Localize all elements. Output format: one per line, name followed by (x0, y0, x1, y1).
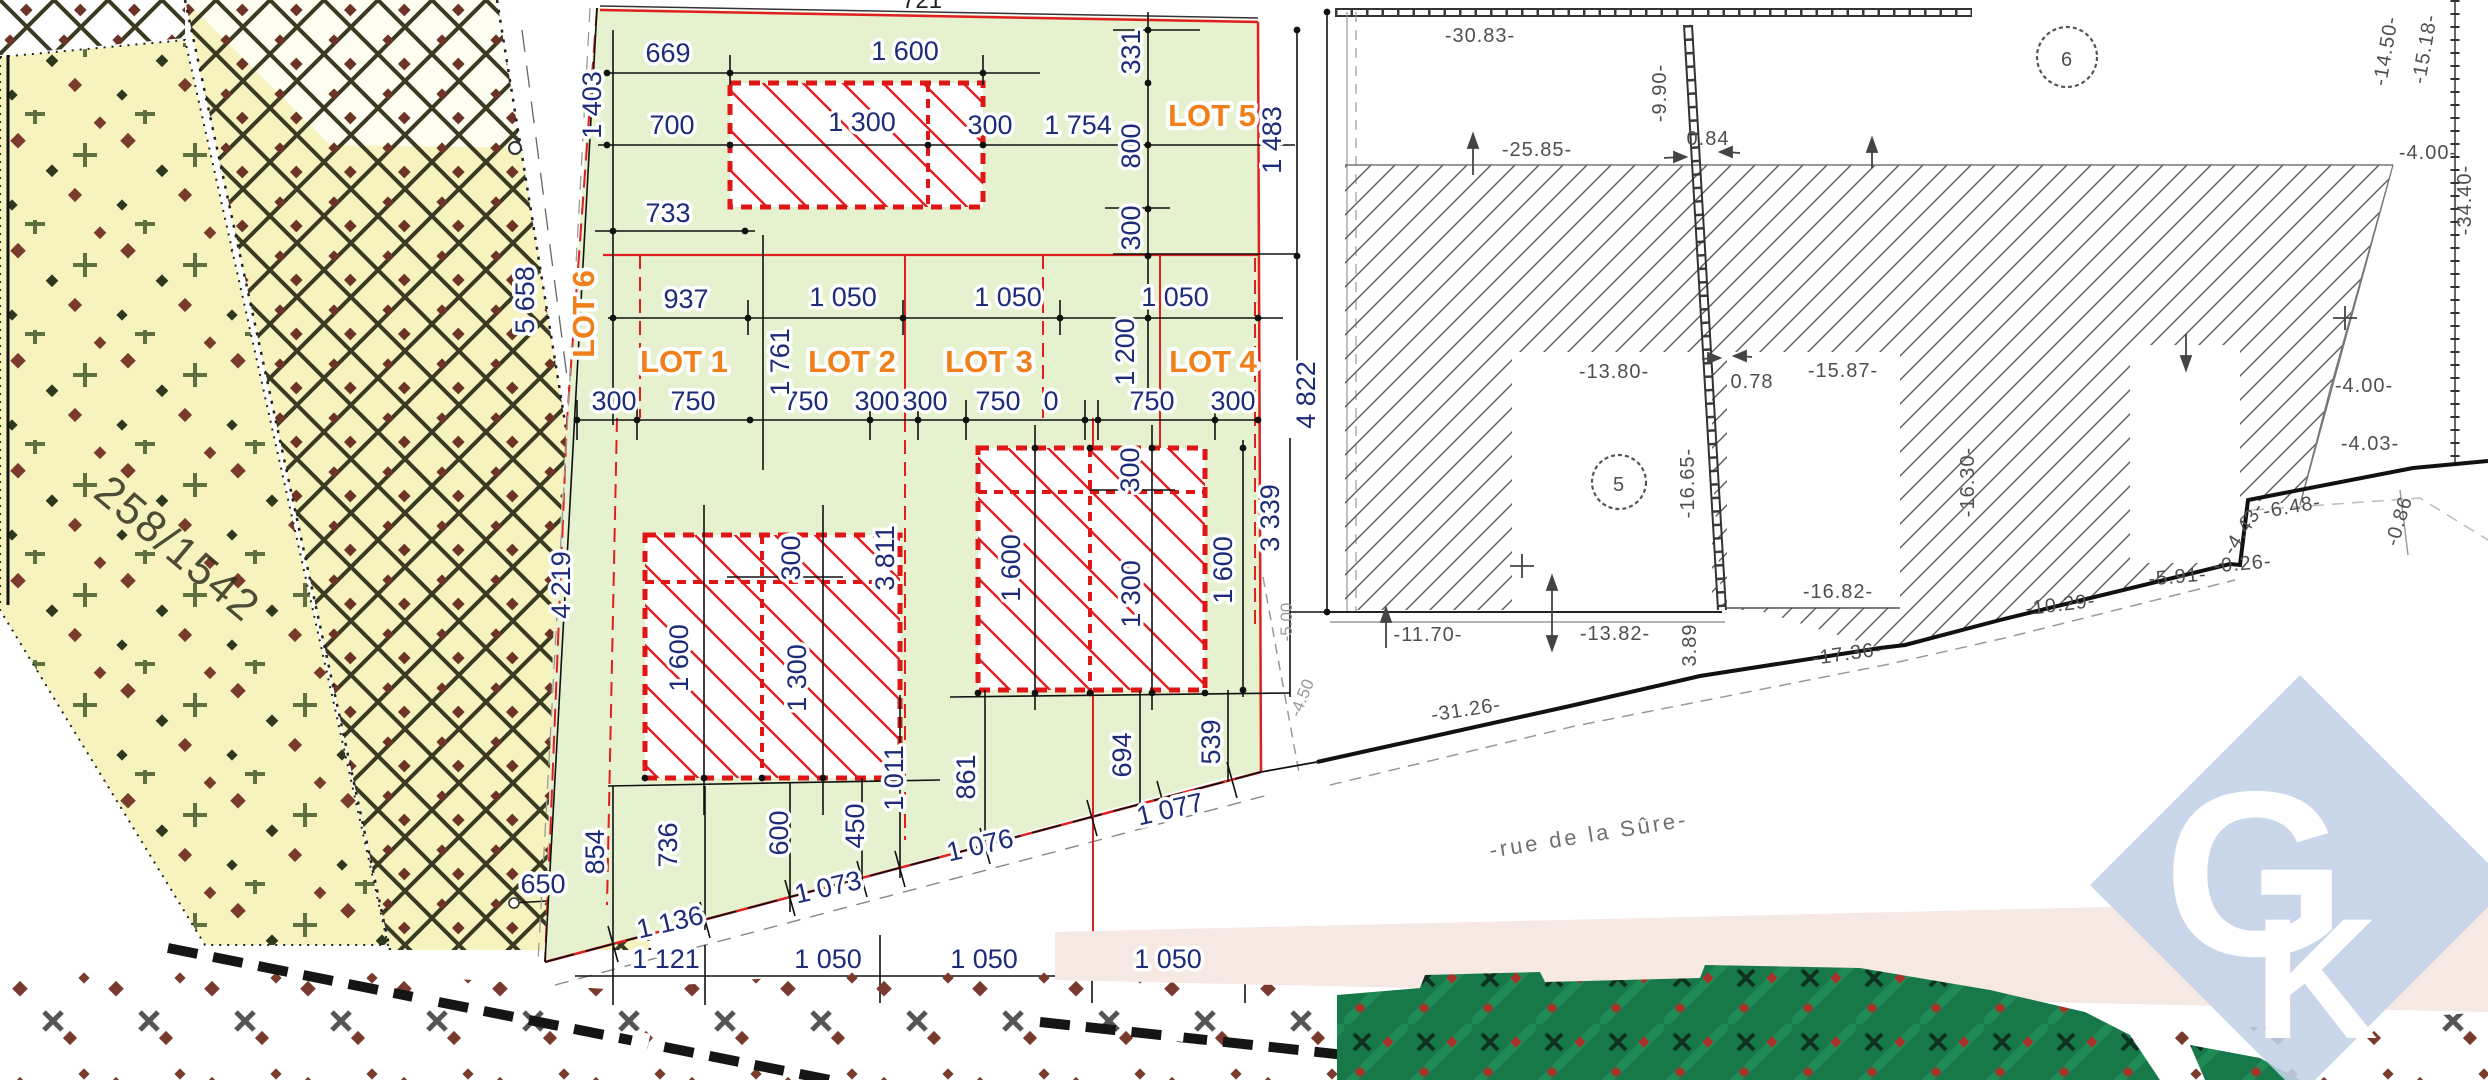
dimension-label: 669 (645, 38, 690, 68)
site-plan-canvas: G K 6691 6007001 3003007331 7549371 0501… (0, 0, 2488, 1080)
survey-label: -15.87- (1808, 360, 1878, 382)
dimension-label: 736 (653, 822, 683, 867)
survey-label: 0.84 (1687, 128, 1730, 150)
dimension-label: 1 600 (664, 624, 694, 692)
survey-label: -34.40- (2454, 165, 2476, 235)
lot-label: LOT 2 (808, 344, 896, 379)
dimension-label: 1 121 (632, 944, 700, 974)
dimension-label: 1 403 (577, 71, 607, 139)
survey-label: -13.82- (1580, 623, 1650, 645)
dimension-label: 600 (764, 810, 794, 855)
elevation-label: -5.00 (1277, 603, 1296, 642)
dimension-label: 300 (1210, 386, 1255, 416)
survey-label: -11.70- (1394, 624, 1463, 646)
survey-label: -4.00- (2399, 142, 2457, 164)
dimension-label: 1 050 (794, 944, 862, 974)
dimension-label: 300 (591, 386, 636, 416)
dimension-label: 1 754 (1044, 110, 1112, 140)
dimension-label: 1 050 (950, 944, 1018, 974)
lot-label: LOT 1 (640, 344, 728, 379)
survey-label: -4.03- (2341, 433, 2399, 455)
survey-label: -4.00- (2335, 375, 2393, 397)
dimension-label: 1 300 (782, 644, 812, 712)
clipped-edge-label: 721 (902, 0, 942, 14)
dimension-label: 3 339 (1255, 484, 1285, 552)
existing-building-far-east (2130, 345, 2240, 563)
survey-label: 5 (1613, 474, 1625, 496)
dimension-label: 331 (1116, 29, 1146, 74)
lot-label: LOT 4 (1169, 344, 1258, 379)
dimension-label: 694 (1107, 732, 1137, 777)
lot-label: LOT 6 (566, 270, 601, 358)
survey-label: 0.78 (1731, 371, 1774, 393)
dimension-label: 1 600 (871, 36, 939, 66)
survey-label: 6 (2061, 49, 2073, 71)
dimension-label: 1 200 (1110, 318, 1140, 386)
dimension-label: 3 811 (870, 525, 900, 591)
dimension-label: 1 011 (879, 745, 909, 811)
survey-label: -30.83- (1445, 25, 1515, 47)
dimension-label: 1 600 (996, 534, 1026, 602)
survey-label: -13.80- (1579, 361, 1649, 383)
dimension-label: 1 050 (809, 282, 877, 312)
dimension-label: 300 (854, 386, 899, 416)
survey-label: -25.85- (1502, 139, 1572, 161)
dimension-label: 800 (1116, 123, 1146, 168)
dimension-label: 1 600 (1208, 536, 1238, 604)
gk-logo-letter-k: K (2254, 883, 2378, 1075)
dimension-label: 854 (580, 829, 610, 874)
survey-label: -16.65- (1677, 448, 1699, 518)
dimension-label: 300 (776, 535, 806, 580)
dimension-label: 937 (663, 284, 708, 314)
dimension-label: 1 483 (1257, 106, 1287, 174)
dimension-label: 450 (840, 803, 870, 848)
dimension-label: 750 (975, 386, 1020, 416)
dimension-label: 733 (645, 198, 690, 228)
dimension-label: 1 300 (828, 107, 896, 137)
dimension-label: 700 (649, 110, 694, 140)
dimension-label: 4 822 (1291, 361, 1321, 429)
lot-label: LOT 3 (945, 344, 1033, 379)
dimension-label: 1 761 (765, 328, 795, 396)
dimension-label: 750 (1129, 386, 1174, 416)
dimension-label: 1 050 (1141, 282, 1209, 312)
dimension-label: 0 (1043, 386, 1058, 416)
lot-label: LOT 5 (1168, 98, 1256, 133)
dimension-label: 300 (967, 110, 1012, 140)
dimension-label: 5 658 (510, 266, 540, 334)
dimension-label: 300 (1115, 447, 1145, 492)
dimension-label: 750 (670, 386, 715, 416)
survey-label: -16.30- (1957, 447, 1979, 517)
dimension-label: 861 (951, 754, 981, 799)
dimension-label: 1 300 (1116, 560, 1146, 628)
dimension-label: 650 (520, 869, 565, 899)
dimension-label: 300 (1116, 205, 1146, 250)
dimension-label: 4 219 (546, 551, 576, 619)
survey-label: -16.82- (1803, 581, 1873, 603)
dimension-label: 300 (902, 386, 947, 416)
dimension-label: 1 050 (1134, 944, 1202, 974)
dimension-label: 539 (1196, 719, 1226, 764)
survey-label: 3.89 (1679, 624, 1701, 667)
survey-label: -9.90- (1649, 64, 1671, 122)
dimension-label: 1 050 (974, 282, 1042, 312)
